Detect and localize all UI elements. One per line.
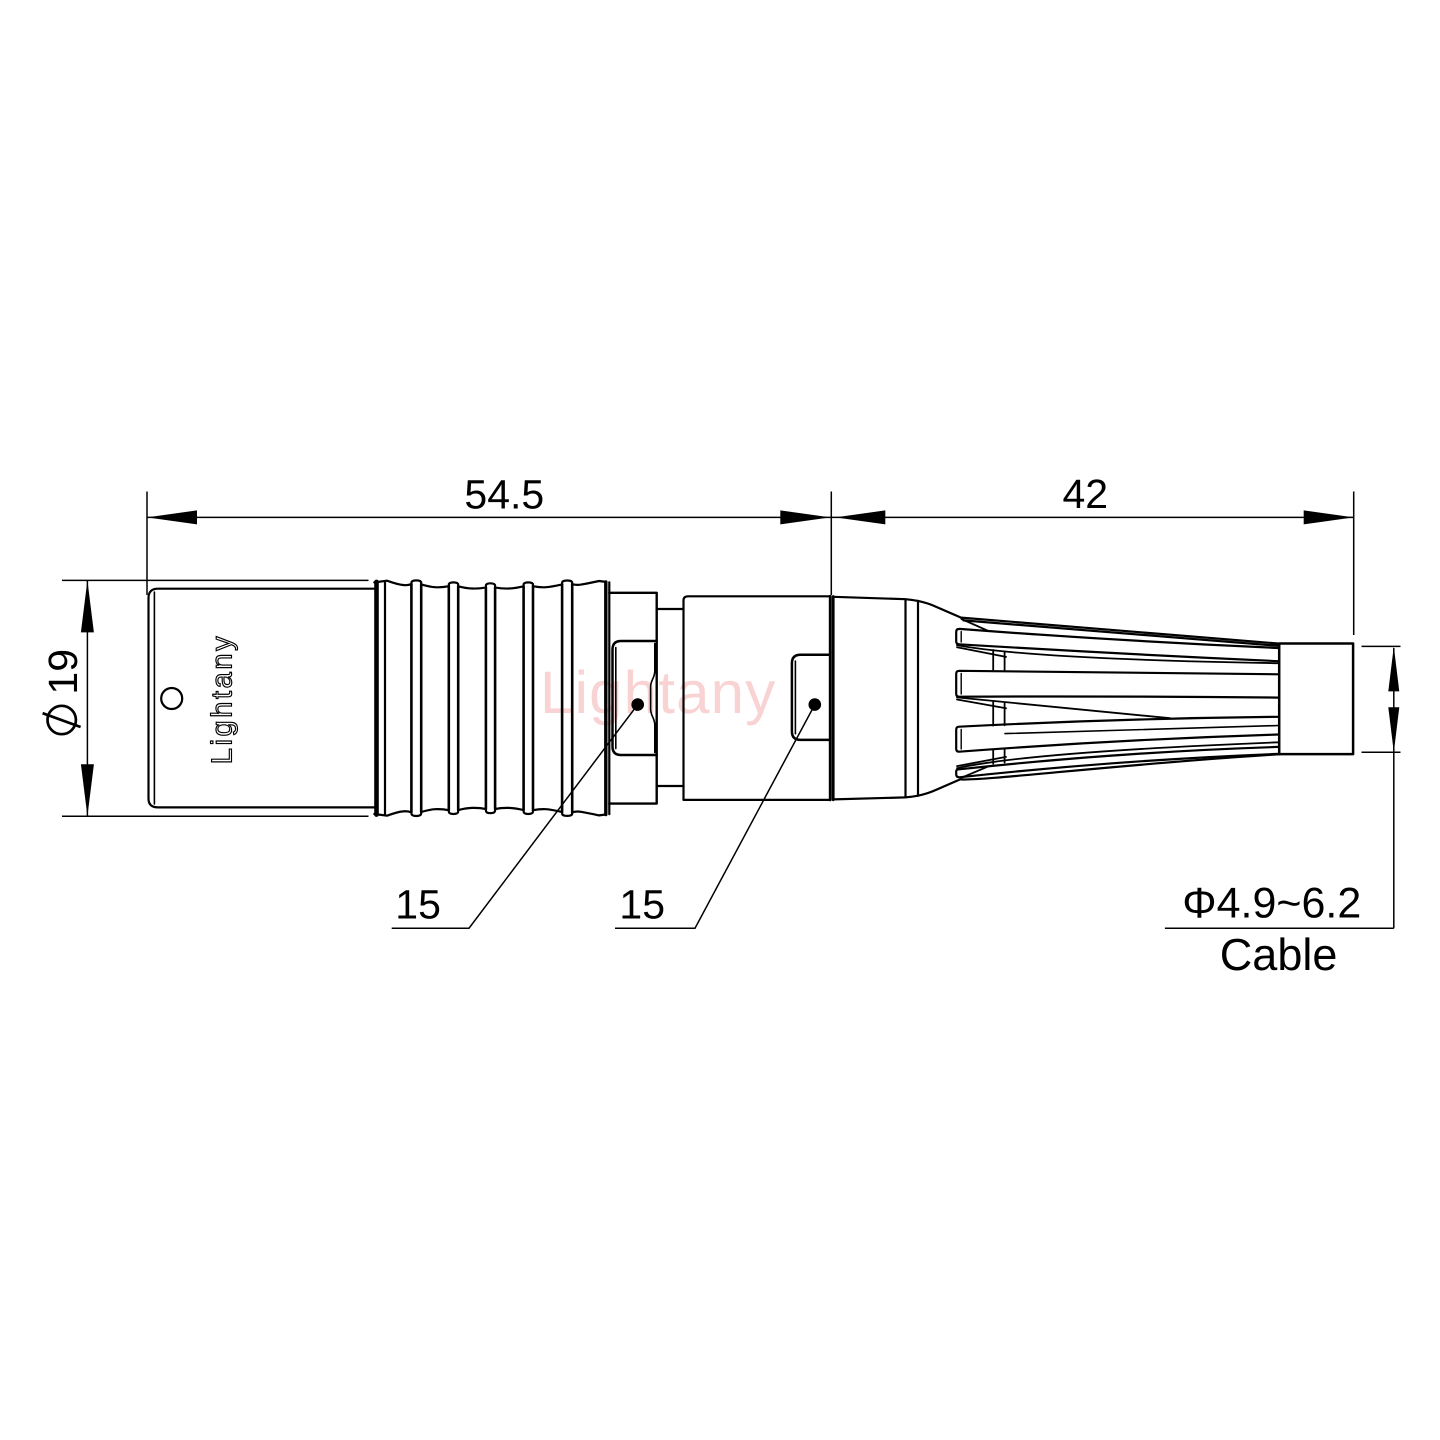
svg-text:Cable: Cable: [1220, 929, 1338, 980]
svg-text:42: 42: [1062, 471, 1108, 517]
svg-text:15: 15: [619, 881, 665, 927]
svg-text:15: 15: [395, 881, 441, 927]
svg-text:Lightany: Lightany: [540, 659, 776, 726]
svg-text:Lightany: Lightany: [207, 634, 239, 764]
svg-text:Φ4.9~6.2: Φ4.9~6.2: [1182, 880, 1361, 928]
svg-text:19: 19: [40, 649, 86, 695]
svg-text:54.5: 54.5: [464, 471, 544, 517]
